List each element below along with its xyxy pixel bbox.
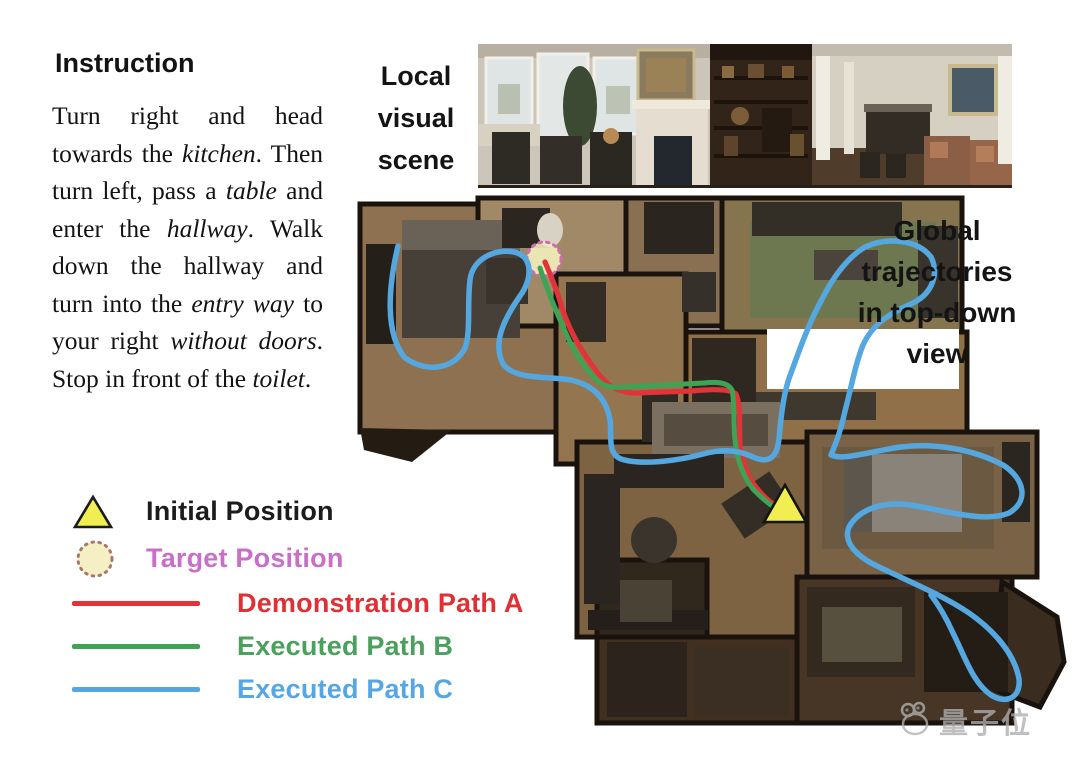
panorama-image bbox=[478, 44, 1012, 188]
green-line-icon bbox=[72, 644, 205, 649]
watermark: 量子位 bbox=[893, 698, 1032, 743]
legend-label: Initial Position bbox=[146, 496, 334, 527]
local-scene-label: Local visual scene bbox=[364, 55, 468, 181]
instruction-paragraph: Turn right and head towards the kitchen.… bbox=[52, 97, 323, 397]
initial-position-triangle-icon bbox=[72, 494, 120, 530]
instr-seg-italic: toilet bbox=[252, 364, 304, 393]
target-position-circle-icon bbox=[72, 536, 120, 582]
instr-seg-italic: entry way bbox=[191, 289, 294, 318]
global-trajectories-label: Global trajectories in top-down view bbox=[840, 210, 1034, 374]
red-line-icon bbox=[72, 601, 205, 606]
instr-seg-italic: hallway bbox=[167, 214, 248, 243]
instruction-heading: Instruction bbox=[55, 48, 195, 79]
instr-seg: . bbox=[305, 364, 311, 393]
target-position-marker bbox=[527, 242, 561, 276]
qbitai-mascot-icon bbox=[893, 698, 933, 743]
watermark-text: 量子位 bbox=[939, 700, 1032, 742]
figure-page: Instruction Turn right and head towards … bbox=[0, 0, 1080, 763]
blue-line-icon bbox=[72, 687, 205, 692]
instr-seg-italic: without doors bbox=[170, 326, 316, 355]
instr-seg-italic: kitchen bbox=[182, 139, 256, 168]
instr-seg-italic: table bbox=[226, 176, 277, 205]
legend-label: Target Position bbox=[146, 543, 344, 574]
